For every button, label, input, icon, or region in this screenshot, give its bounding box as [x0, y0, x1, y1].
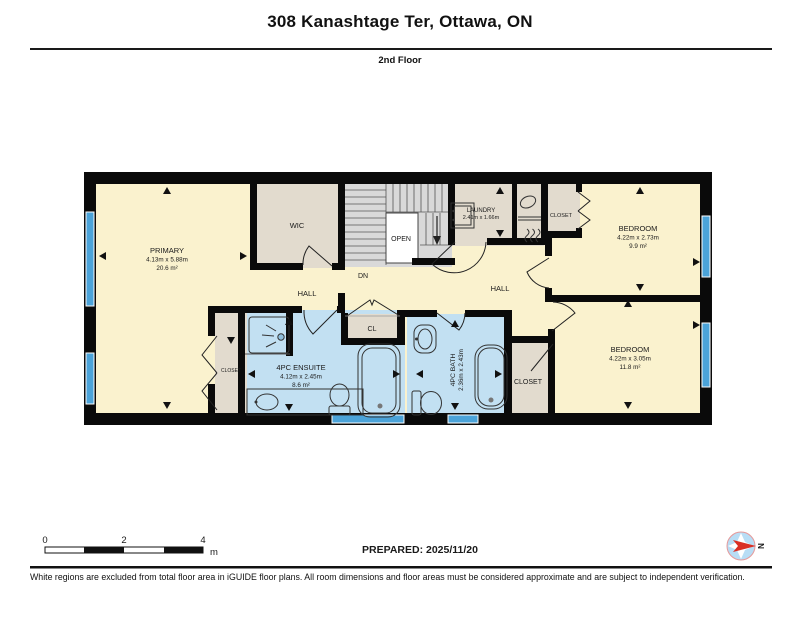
room-dims-bedroom-tr: 4.22m x 2.73m: [617, 235, 659, 242]
window: [86, 353, 94, 404]
window: [448, 415, 478, 423]
footer-divider: [30, 566, 772, 569]
room-area-bedroom-tr: 9.9 m²: [629, 243, 647, 250]
room-label-hall-west: HALL: [298, 289, 317, 298]
room-label-wic: WIC: [290, 221, 305, 230]
window: [86, 212, 94, 306]
floor-plan-page: 308 Kanashtage Ter, Ottawa, ON 2nd Floor: [0, 0, 800, 618]
window: [702, 216, 710, 277]
room-label-bedroom-br: BEDROOM: [611, 345, 650, 354]
stairs-open-label: OPEN: [391, 236, 411, 243]
room-area-primary: 20.6 m²: [156, 265, 177, 272]
disclaimer-text: White regions are excluded from total fl…: [30, 572, 772, 582]
room-label-closet-tr: CLOSET: [550, 213, 573, 219]
scale-unit: m: [210, 547, 218, 558]
room-dims-bath: 2.36m x 2.43m: [458, 349, 465, 391]
room-dims-laundry: 2.41m x 1.66m: [463, 215, 500, 221]
prepared-date: PREPARED: 2025/11/20: [362, 544, 478, 556]
room-label-bath: 4PC BATH: [450, 354, 457, 387]
compass-icon: N: [727, 532, 765, 560]
room-label-hall-east: HALL: [491, 284, 510, 293]
room-dims-primary: 4.13m x 5.88m: [146, 257, 188, 264]
scale-bar: 0 2 4 m: [42, 535, 218, 558]
room-area-bedroom-br: 11.8 m²: [620, 364, 641, 371]
compass-north-label: N: [756, 543, 765, 549]
room-dims-bedroom-br: 4.22m x 3.05m: [609, 356, 651, 363]
stairs-dn-label: DN: [358, 273, 368, 280]
room-label-closet-primary: CLOSET: [221, 368, 241, 374]
floor-plan-drawing: PRIMARY 4.13m x 5.88m 20.6 m² WIC LAUNDR…: [0, 0, 800, 618]
scale-tick-0: 0: [42, 535, 47, 546]
room-label-ensuite: 4PC ENSUITE: [276, 363, 325, 372]
window: [702, 323, 710, 387]
room-label-cl: CL: [368, 326, 377, 333]
room-dims-ensuite: 4.12m x 2.45m: [280, 374, 322, 381]
room-label-bedroom-tr: BEDROOM: [619, 224, 658, 233]
scale-tick-2: 2: [121, 535, 126, 546]
room-label-closet-br: CLOSET: [514, 379, 543, 386]
room-area-ensuite: 8.6 m²: [292, 382, 310, 389]
scale-tick-4: 4: [200, 535, 205, 546]
room-label-laundry: LAUNDRY: [467, 208, 496, 214]
room-label-primary: PRIMARY: [150, 246, 184, 255]
